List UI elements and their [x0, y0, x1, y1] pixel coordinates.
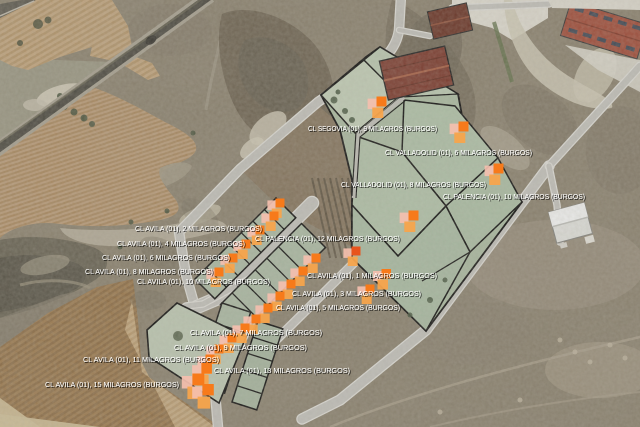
svg-text:CL AVILA (01), 7 MILAGROS (BUR: CL AVILA (01), 7 MILAGROS (BURGOS) — [190, 328, 322, 337]
svg-text:CL AVILA (01), 1 MILAGROS (BUR: CL AVILA (01), 1 MILAGROS (BURGOS) — [307, 271, 437, 280]
svg-text:CL VALLADOLID (01), 8 MILAGROS: CL VALLADOLID (01), 8 MILAGROS (BURGOS) — [341, 180, 486, 189]
svg-text:CL AVILA (01), 2 MILAGROS (BUR: CL AVILA (01), 2 MILAGROS (BURGOS) — [135, 224, 262, 233]
svg-text:CL AVILA (01), 6 MILAGROS (BUR: CL AVILA (01), 6 MILAGROS (BURGOS) — [102, 253, 230, 262]
svg-text:CL AVILA (01), 5 MILAGROS (BUR: CL AVILA (01), 5 MILAGROS (BURGOS) — [276, 303, 400, 312]
svg-text:CL AVILA (01), 13 MILAGROS (BU: CL AVILA (01), 13 MILAGROS (BURGOS) — [214, 366, 350, 375]
svg-text:CL AVILA (01), 10 MILAGROS (BU: CL AVILA (01), 10 MILAGROS (BURGOS) — [137, 277, 270, 286]
svg-text:CL AVILA (01), 3 MILAGROS (BUR: CL AVILA (01), 3 MILAGROS (BURGOS) — [292, 289, 421, 298]
svg-text:CL SEGOVIA (01), 9 MILAGROS (B: CL SEGOVIA (01), 9 MILAGROS (BURGOS) — [308, 124, 437, 133]
svg-text:CL VALLADOLID (01), 6 MILAGROS: CL VALLADOLID (01), 6 MILAGROS (BURGOS) — [385, 148, 532, 157]
svg-text:CL AVILA (01), 9 MILAGROS (BUR: CL AVILA (01), 9 MILAGROS (BURGOS) — [174, 343, 307, 352]
svg-text:CL PALENCIA (01), 10 MILAGROS: CL PALENCIA (01), 10 MILAGROS (BURGOS) — [443, 192, 585, 201]
svg-text:CL AVILA (01), 4 MILAGROS (BUR: CL AVILA (01), 4 MILAGROS (BURGOS) — [117, 239, 245, 248]
svg-text:CL AVILA (01), 11 MILAGROS (BU: CL AVILA (01), 11 MILAGROS (BURGOS) — [83, 355, 219, 364]
svg-text:CL PALENCIA (01), 12 MILAGROS: CL PALENCIA (01), 12 MILAGROS (BURGOS) — [255, 234, 400, 243]
svg-text:CL AVILA (01), 15 MILAGROS (BU: CL AVILA (01), 15 MILAGROS (BURGOS) — [45, 380, 179, 389]
svg-text:CL AVILA (01), 8 MILAGROS (BUR: CL AVILA (01), 8 MILAGROS (BURGOS) — [85, 267, 213, 276]
